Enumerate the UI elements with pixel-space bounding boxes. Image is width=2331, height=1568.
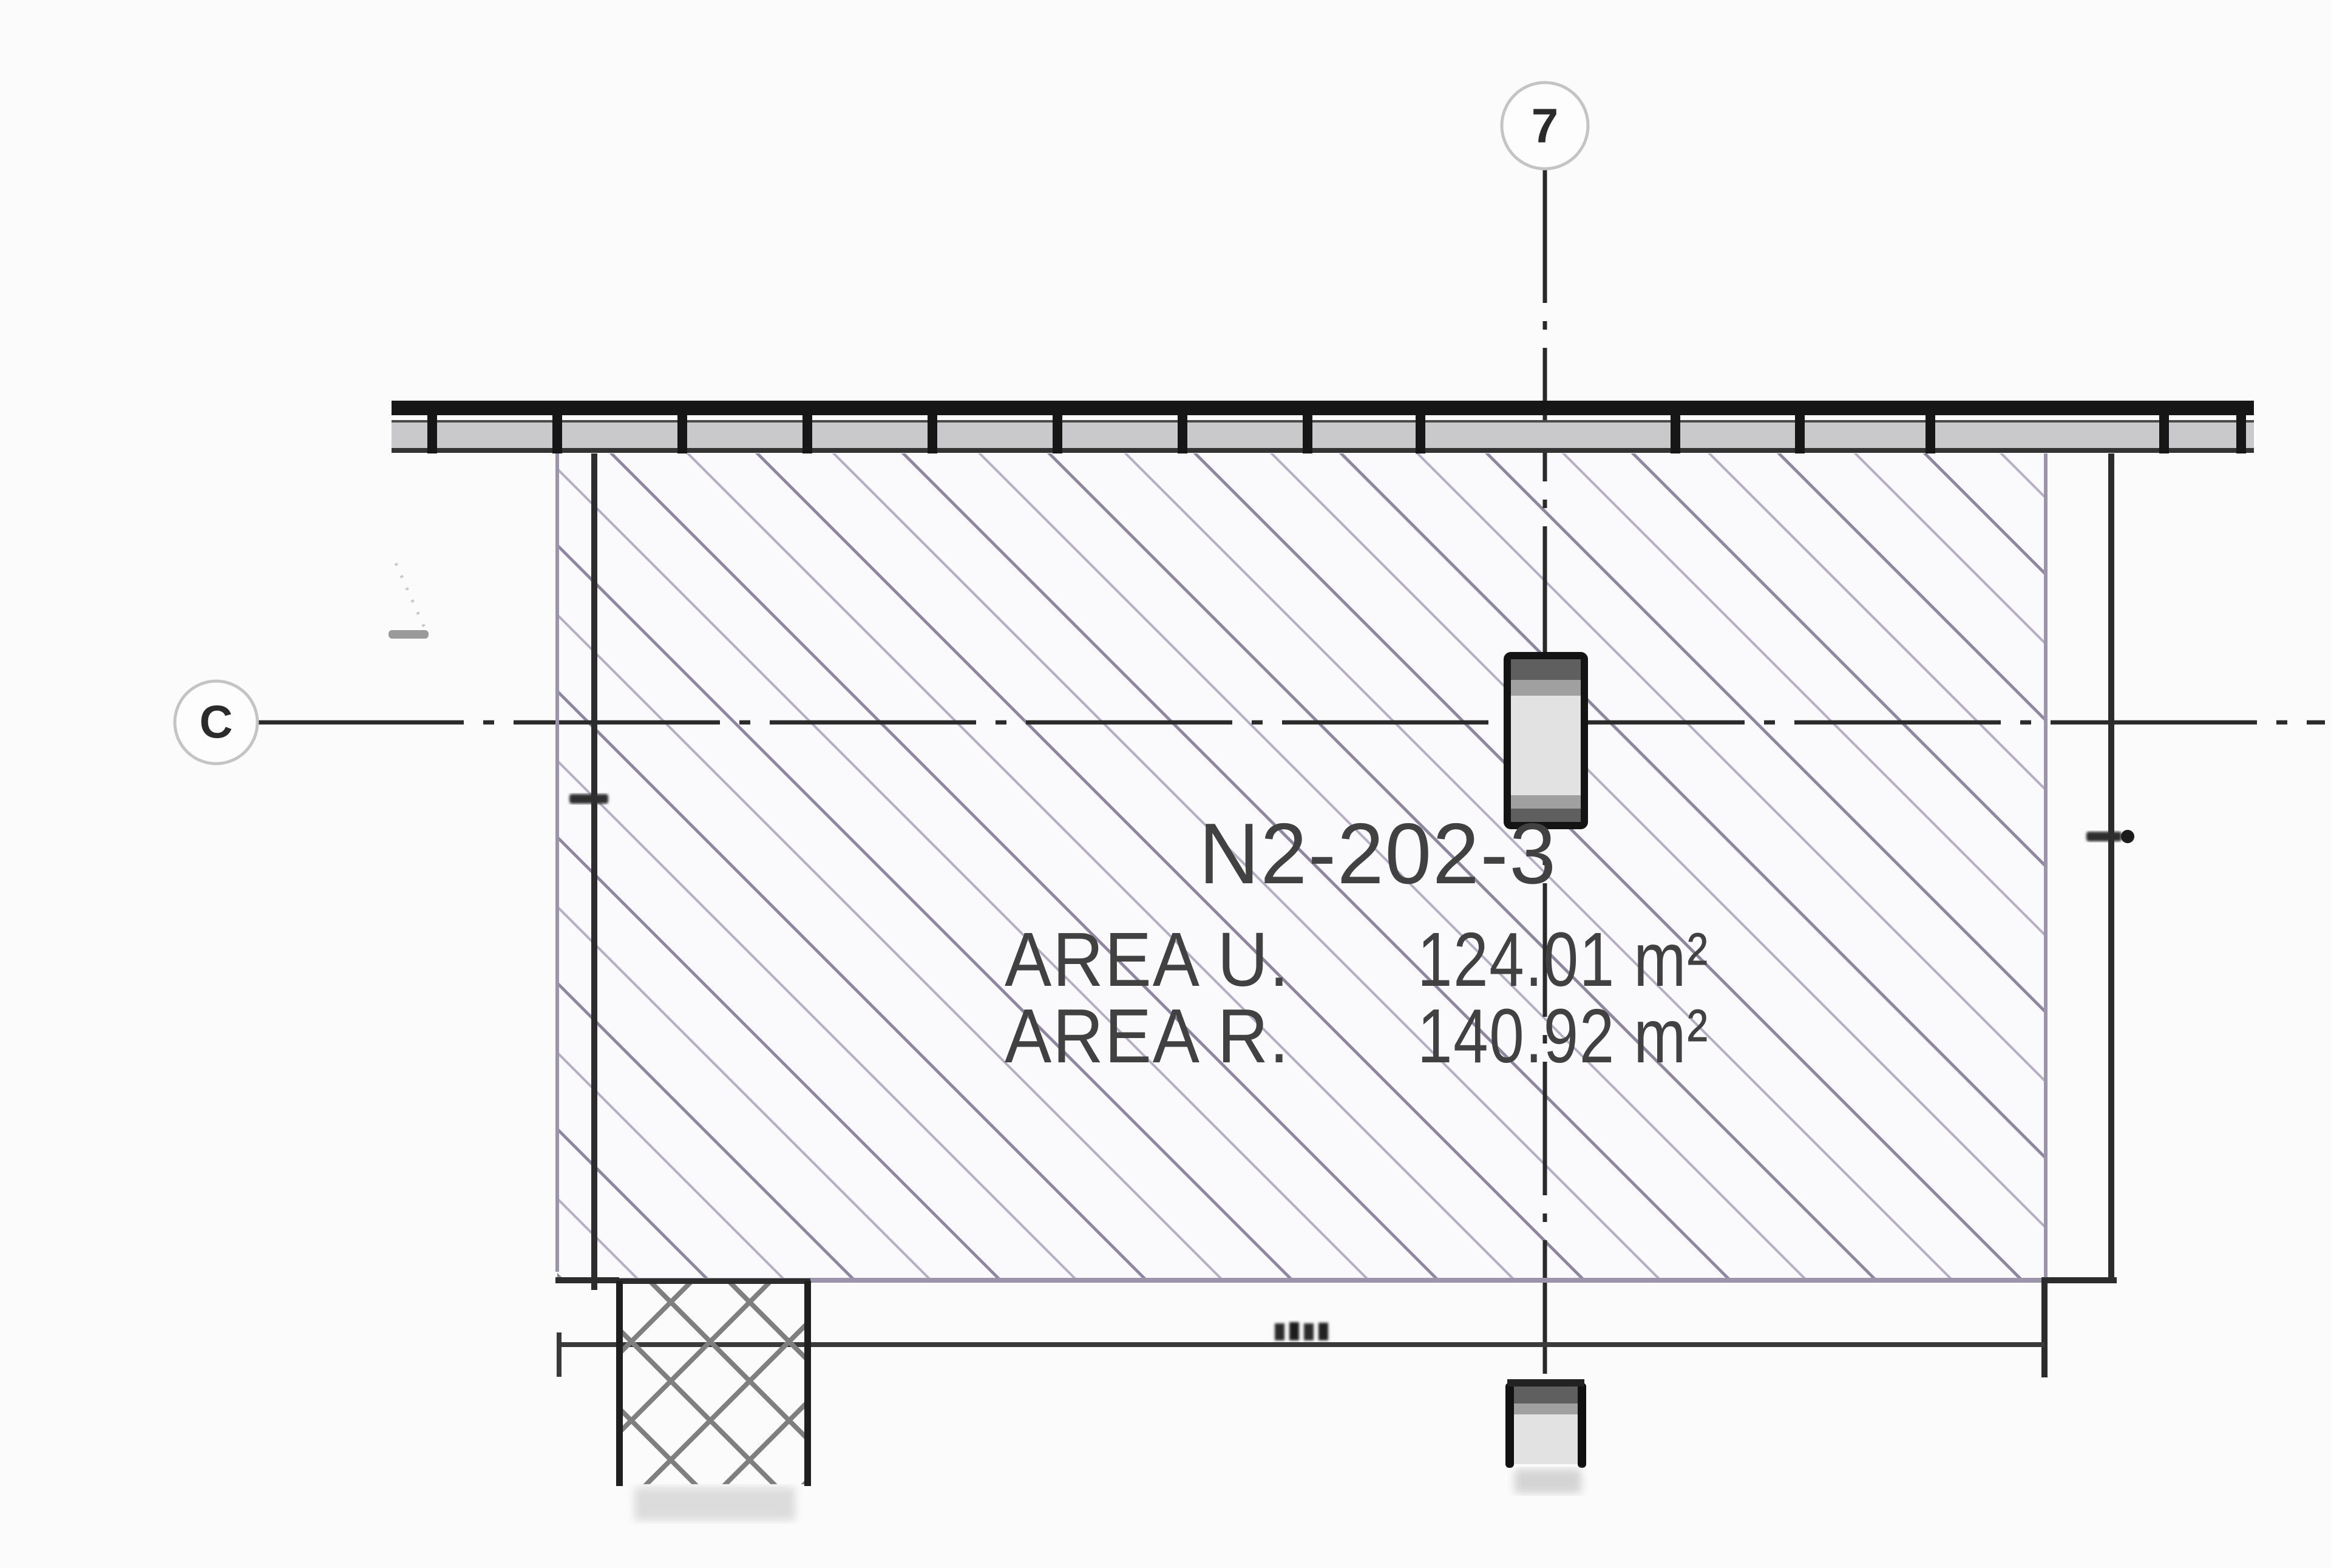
wall-separator xyxy=(677,401,687,453)
right-boundary-inner xyxy=(2044,453,2048,1281)
grid-marker-7: 7 xyxy=(1502,83,1588,169)
wall-outer-line xyxy=(392,401,2254,415)
wall-separator xyxy=(1671,401,1680,453)
floor-plan-canvas: 7 C N2-202-3 AREA U. 124.01 m² AREA R. 1… xyxy=(0,0,2331,1568)
wall-inner-line xyxy=(392,448,2254,453)
wall-separator xyxy=(928,401,937,453)
right-boundary-tick xyxy=(2086,830,2134,843)
footing-right-border xyxy=(804,1281,811,1486)
wall-separator xyxy=(2236,401,2246,453)
area-u-value: 124.01 m² xyxy=(1417,917,1709,1002)
grid-label-7: 7 xyxy=(1532,99,1559,153)
wall-band xyxy=(392,421,2254,449)
area-u-label: AREA U. xyxy=(1005,917,1290,1002)
center-column xyxy=(1507,656,1584,826)
bottom-column-top-border xyxy=(1507,1379,1584,1386)
bottom-edge-right-step xyxy=(2044,1277,2117,1283)
footing-block xyxy=(616,1278,811,1521)
grid-marker-c: C xyxy=(175,681,257,764)
grid-label-c: C xyxy=(200,697,233,748)
dimension-left-foot xyxy=(557,1332,562,1377)
wall-separator xyxy=(802,401,812,453)
wall-separator xyxy=(1178,401,1187,453)
artifact-dotted-line xyxy=(396,563,425,629)
artifact-bar xyxy=(388,630,429,639)
footing-left-border xyxy=(616,1281,623,1486)
bottom-column-strip xyxy=(1508,1403,1583,1414)
wall-separator xyxy=(1053,401,1062,453)
wall-separator xyxy=(1416,401,1425,453)
left-boundary-inner xyxy=(591,453,597,1290)
dimension-text-illegible xyxy=(1275,1322,1328,1340)
area-r-value: 140.92 m² xyxy=(1417,993,1709,1079)
wall-band-top-edge xyxy=(392,420,2254,423)
bottom-column-right-border xyxy=(1578,1383,1586,1468)
area-r-label: AREA R. xyxy=(1005,993,1290,1079)
left-boundary-outer xyxy=(555,453,559,1272)
footing-crosshatch xyxy=(622,1281,804,1484)
center-column-cap-top xyxy=(1507,659,1584,680)
bottom-edge-left-step xyxy=(555,1277,619,1283)
bottom-column xyxy=(1505,1379,1586,1493)
top-wall xyxy=(392,401,2254,453)
footing-fade xyxy=(634,1487,795,1521)
unit-code-label: N2-202-3 xyxy=(1199,806,1557,902)
bottom-column-left-border xyxy=(1505,1383,1514,1468)
wall-separator xyxy=(1303,401,1312,453)
floor-plan-drawing: 7 C N2-202-3 AREA U. 124.01 m² AREA R. 1… xyxy=(0,0,2331,1568)
left-boundary-tick xyxy=(569,794,608,804)
wall-separator xyxy=(1795,401,1805,453)
right-boundary-outer xyxy=(2108,453,2114,1281)
wall-separator xyxy=(552,401,562,453)
right-step-vertical xyxy=(2041,1277,2048,1377)
center-column-strip-top xyxy=(1507,680,1584,696)
bottom-edge xyxy=(619,1278,2044,1283)
footing-top-border xyxy=(616,1278,810,1284)
bottom-column-fade xyxy=(1515,1469,1581,1493)
wall-separator xyxy=(427,401,437,453)
drafting-artifact xyxy=(388,563,429,639)
wall-separator xyxy=(2159,401,2169,453)
wall-separator xyxy=(1926,401,1935,453)
